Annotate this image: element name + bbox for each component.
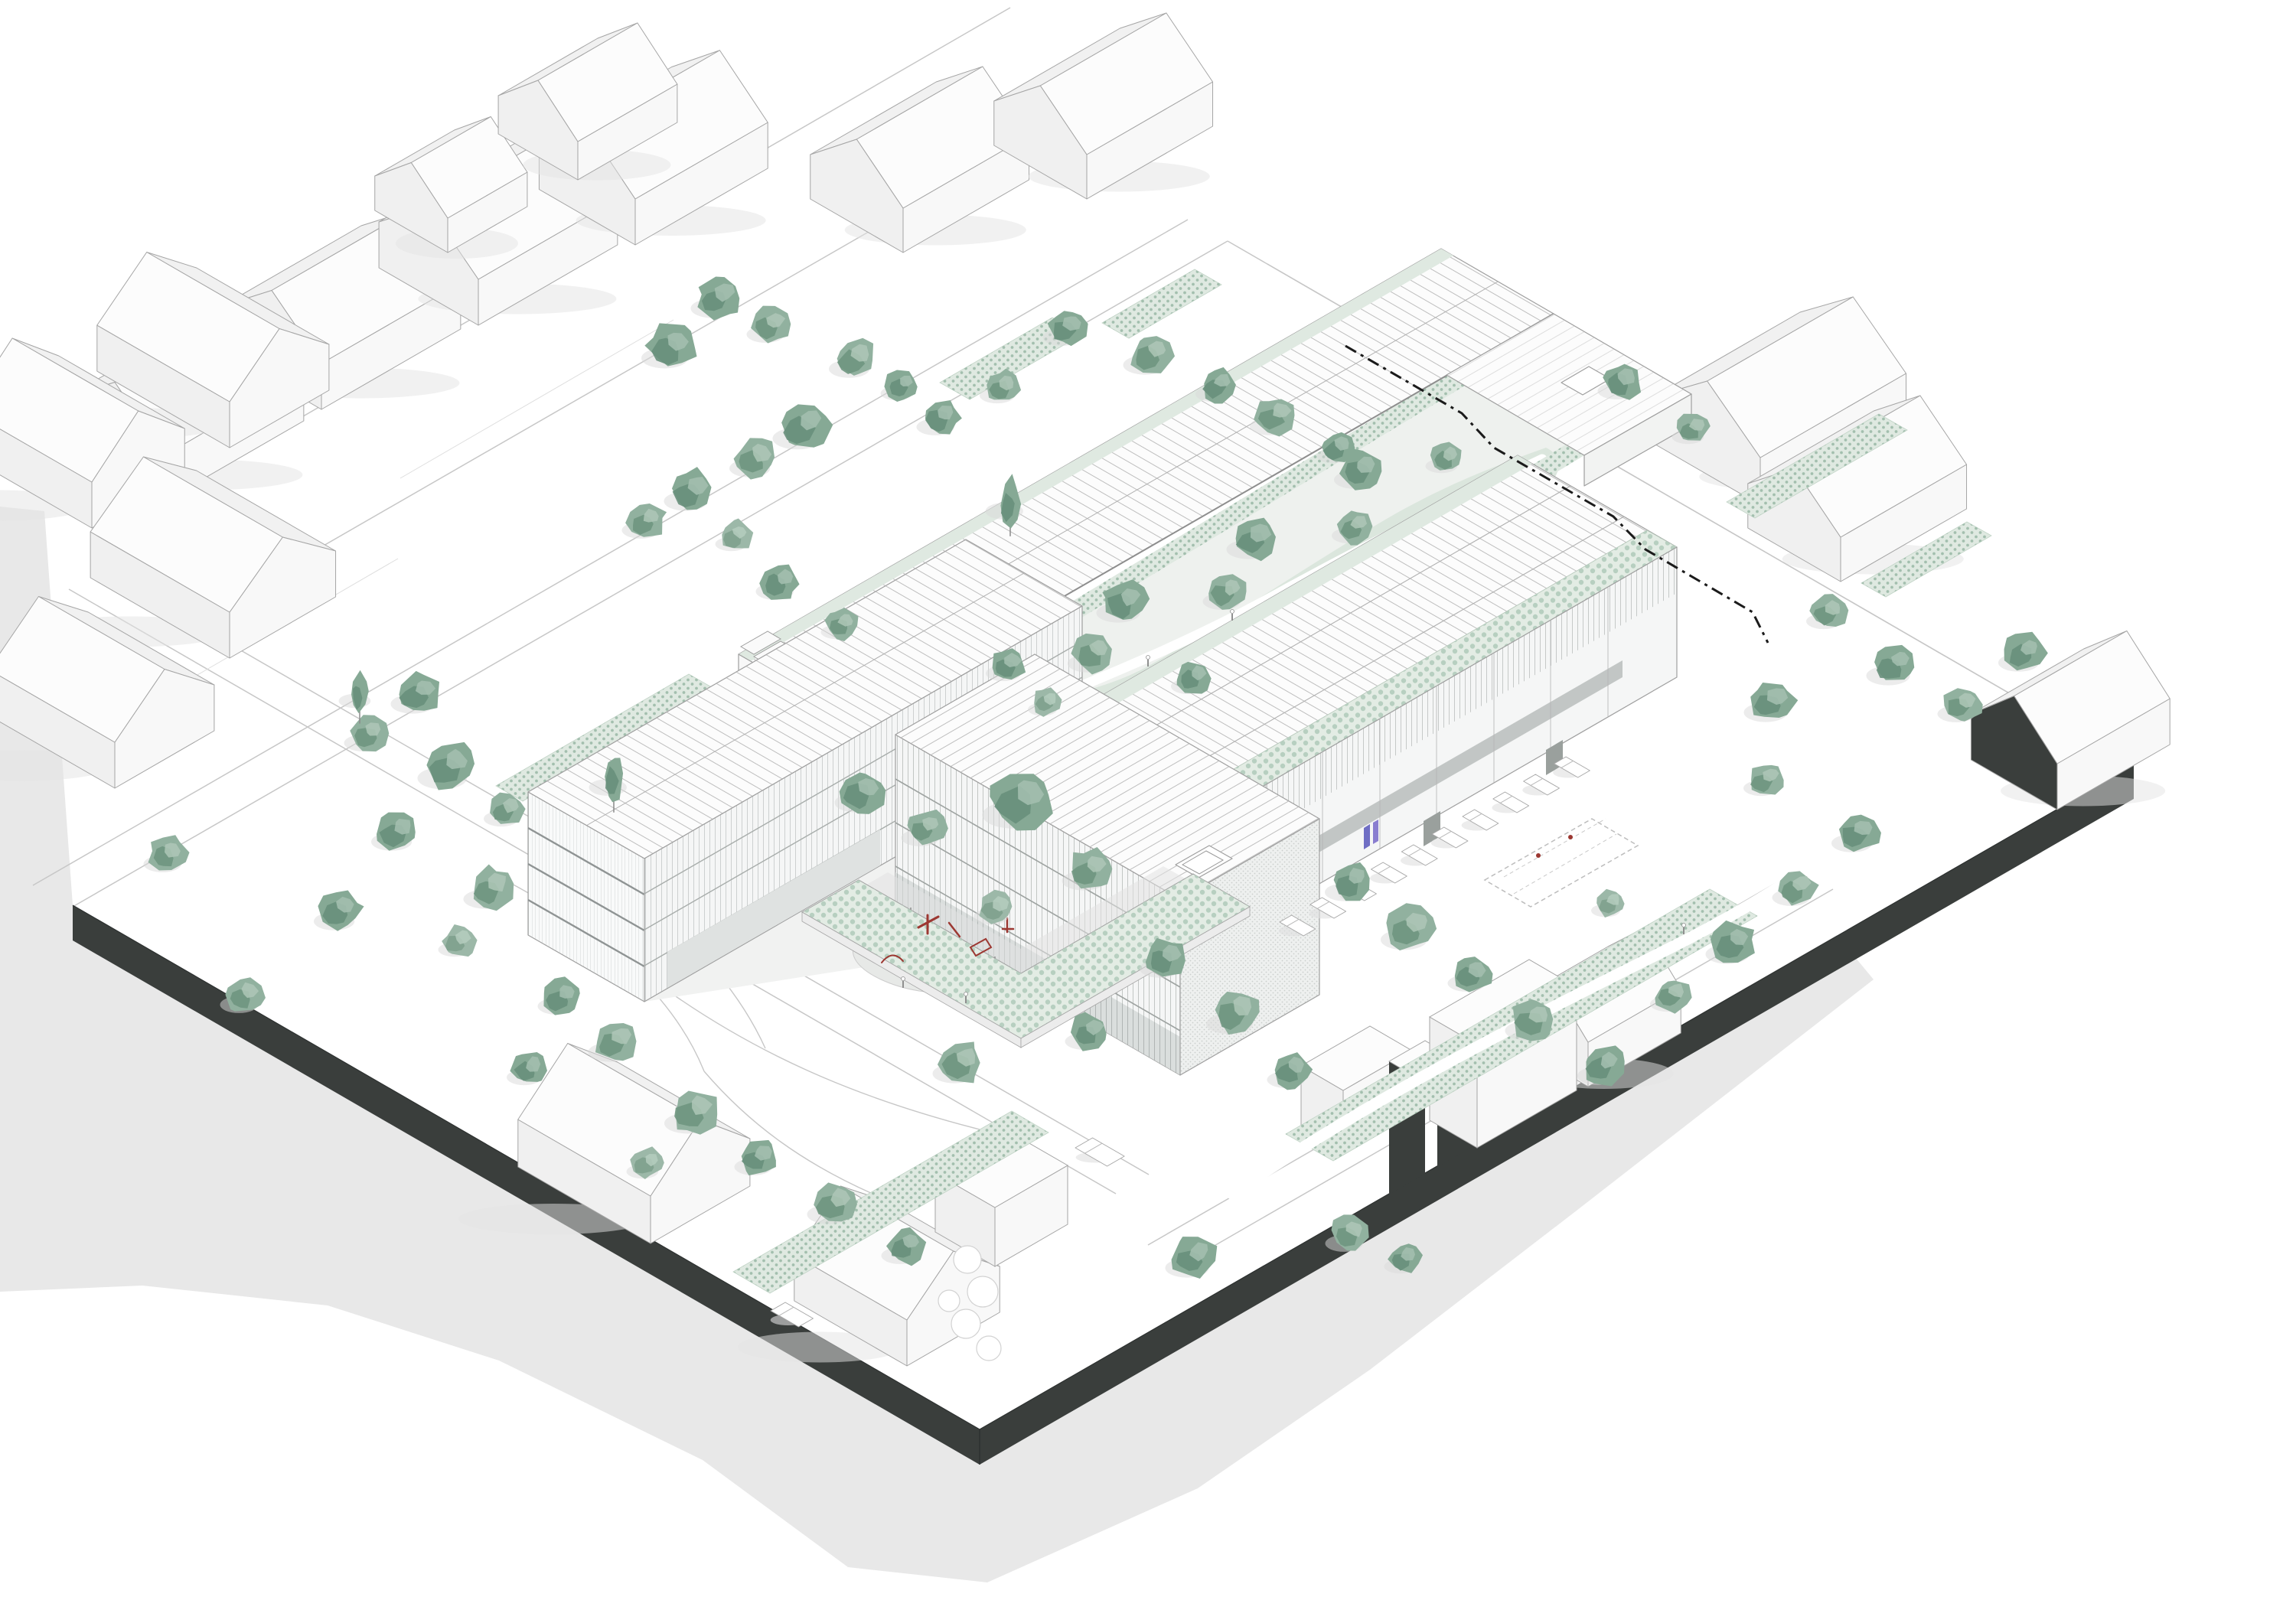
- tree: [220, 977, 266, 1013]
- tree: [641, 323, 697, 368]
- tree: [314, 890, 364, 930]
- tree: [716, 519, 754, 552]
- tree: [1124, 336, 1176, 374]
- blue-accent: [1364, 824, 1370, 849]
- parked-car: [1522, 774, 1559, 796]
- tree: [418, 742, 475, 790]
- tree: [1381, 903, 1437, 950]
- tree: [1591, 889, 1625, 917]
- street-curve: [673, 995, 980, 1129]
- tree: [622, 504, 667, 539]
- parcel-line: [400, 320, 673, 478]
- parked-car: [1462, 810, 1499, 831]
- tree: [144, 835, 190, 872]
- tree: [729, 438, 775, 479]
- tree: [1744, 683, 1799, 722]
- tree: [1743, 765, 1784, 796]
- tree: [391, 671, 440, 714]
- site-plan-svg: [0, 0, 2296, 1623]
- tree: [829, 338, 873, 378]
- tree: [1867, 645, 1915, 686]
- blue-accent: [1373, 820, 1378, 844]
- axonometric-site-plan-image: [0, 0, 2296, 1623]
- parked-car: [1401, 845, 1437, 866]
- tree: [933, 1041, 980, 1083]
- ghost-tree: [938, 1290, 960, 1312]
- tree: [344, 715, 390, 751]
- tree: [691, 276, 740, 320]
- tree: [589, 1023, 637, 1062]
- tree: [371, 813, 416, 851]
- tree: [917, 400, 962, 435]
- tree: [439, 924, 478, 957]
- context-house-cut: [1971, 631, 2170, 810]
- parked-car: [1492, 792, 1528, 813]
- tree: [664, 467, 712, 510]
- ghost-tree: [967, 1276, 998, 1307]
- ghost-tree: [954, 1246, 981, 1273]
- tree: [1806, 594, 1848, 629]
- tree: [881, 370, 918, 402]
- tree: [1998, 632, 2048, 672]
- parked-car: [1370, 862, 1407, 884]
- context-house: [810, 67, 1029, 253]
- parked-car: [1075, 1138, 1124, 1166]
- tree: [464, 864, 514, 911]
- tree: [1166, 1237, 1218, 1279]
- tree: [538, 976, 580, 1015]
- ghost-tree: [951, 1309, 980, 1338]
- ghost-tree: [977, 1336, 1001, 1361]
- tree: [1831, 815, 1881, 852]
- tree: [756, 565, 800, 600]
- tree: [507, 1052, 547, 1085]
- tree: [773, 404, 833, 449]
- tree: [747, 306, 791, 344]
